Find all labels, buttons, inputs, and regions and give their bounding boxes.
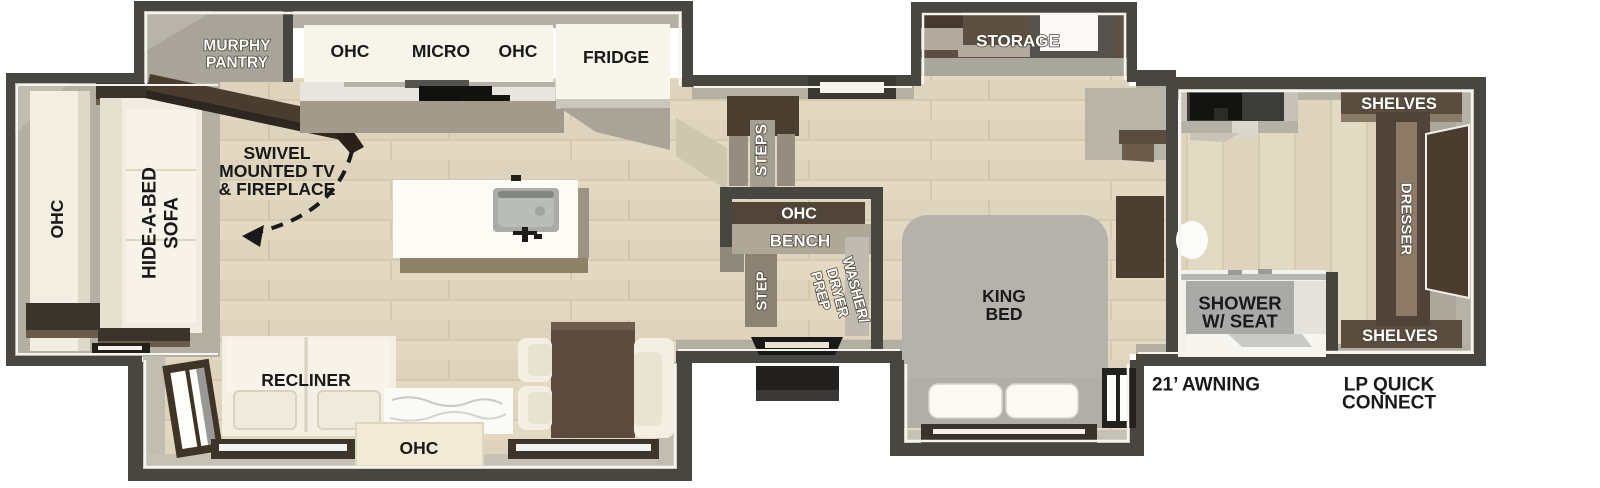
svg-text:RECLINER: RECLINER (261, 370, 351, 390)
svg-text:HIDE-A-BED: HIDE-A-BED (140, 167, 161, 279)
svg-text:MOUNTED TV: MOUNTED TV (219, 161, 335, 181)
svg-text:SHELVES: SHELVES (1362, 327, 1438, 345)
svg-text:MURPHY: MURPHY (203, 38, 271, 55)
svg-text:W/ SEAT: W/ SEAT (1202, 311, 1278, 332)
svg-text:SOFA: SOFA (162, 197, 183, 249)
svg-text:& FIREPLACE: & FIREPLACE (219, 179, 336, 199)
svg-text:OHC: OHC (781, 206, 817, 223)
svg-text:STORAGE: STORAGE (976, 32, 1060, 51)
svg-text:BED: BED (986, 304, 1023, 324)
svg-text:OHC: OHC (400, 438, 439, 458)
svg-text:OHC: OHC (331, 41, 370, 61)
svg-text:FRIDGE: FRIDGE (583, 47, 649, 67)
svg-text:STEP: STEP (754, 271, 771, 310)
svg-text:SHELVES: SHELVES (1361, 95, 1437, 113)
svg-text:CONNECT: CONNECT (1342, 393, 1436, 414)
svg-text:STEPS: STEPS (754, 123, 771, 176)
svg-text:21’ AWNING: 21’ AWNING (1152, 375, 1260, 396)
svg-text:OHC: OHC (47, 199, 67, 238)
svg-text:OHC: OHC (499, 41, 538, 61)
svg-text:SWIVEL: SWIVEL (243, 143, 310, 163)
svg-text:PANTRY: PANTRY (206, 55, 269, 72)
svg-text:KING: KING (982, 286, 1026, 306)
svg-text:DRESSER: DRESSER (1398, 183, 1415, 256)
svg-text:MICRO: MICRO (412, 41, 470, 61)
svg-text:BENCH: BENCH (770, 232, 830, 251)
